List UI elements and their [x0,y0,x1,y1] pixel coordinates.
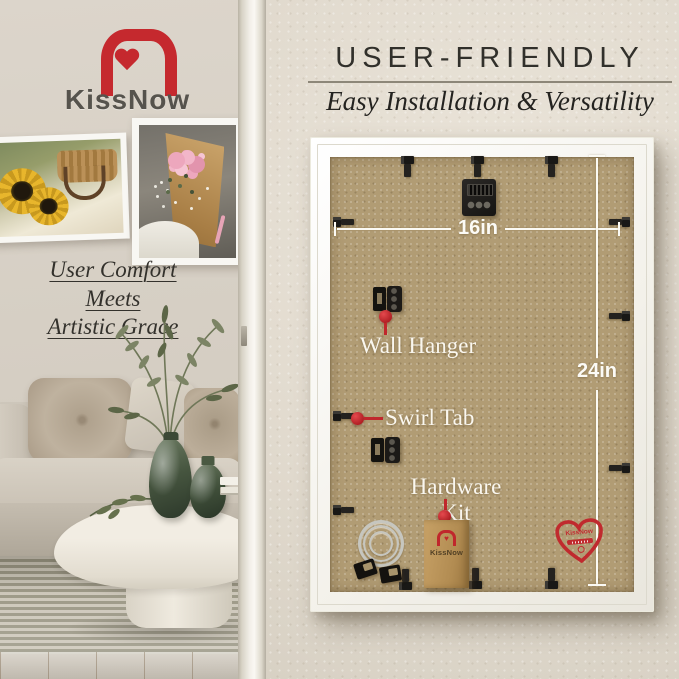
pink-bouquet-photo-frame [132,118,240,265]
babys-breath-icon [160,181,163,184]
book-stack [220,477,240,485]
swirl-tab-icon [545,156,558,178]
wall-hanger-label: Wall Hanger [358,333,478,359]
swirl-tab-icon [333,505,355,515]
callout-line [444,499,447,510]
sunflower-picnic-photo [0,139,124,237]
dimension-tick [334,222,336,236]
width-label: 16in [450,217,506,240]
swirl-tab-icon [333,217,355,227]
title-divider [308,81,672,83]
olive-branches-icon [98,302,240,447]
dimension-tick [618,222,620,236]
swirl-tab-icon [545,567,558,589]
dimension-line [505,228,619,230]
hardware-kit-bag: ♥ KissNow [424,520,469,588]
bag-brand-name: KissNow [424,548,469,557]
sunflower-icon [28,187,69,226]
brand-heart-icon [114,49,140,72]
dimension-line [337,228,451,230]
wall-hanger-icon [373,286,403,312]
swirl-tab-icon [471,156,484,178]
swirl-tab-icon [469,567,482,589]
brand-name: KissNow [20,84,235,116]
wood-floor [0,652,240,679]
basket-strap-icon [63,165,106,200]
callout-dot [351,412,364,425]
callout-line [364,417,383,420]
dimension-tick [589,155,605,157]
heart-badge: KissNow [553,516,607,567]
section-title: USER-FRIENDLY [308,42,672,75]
tagline-line-1: User Comfort [8,256,218,285]
door-hinge-icon [241,326,247,346]
bag-brand-arch-icon: ♥ [437,530,456,546]
swirl-tab-icon [608,463,630,473]
dimension-tick [588,584,606,586]
product-infographic: KissNow User Comfort Meets [0,0,679,679]
dimension-line [596,158,598,358]
living-room-scene: KissNow User Comfort Meets [0,0,240,679]
swirl-tab-icon [401,156,414,178]
wall-hanger-icon [371,437,401,463]
swirl-tab-label: Swirl Tab [385,405,481,431]
sunflower-picnic-photo-frame [0,133,130,244]
hardware-kit-label: Hardware Kit [394,474,518,526]
height-label: 24in [571,360,623,383]
pink-bouquet-photo [139,125,236,258]
swirl-tab-icon [608,311,630,321]
sawtooth-hanger-icon [462,179,496,216]
pink-flowers-icon [168,152,185,169]
callout-dot [379,310,392,323]
section-subtitle: Easy Installation & Versatility [300,86,679,117]
bag-heart-icon: ♥ [444,535,449,543]
green-glass-vase-small [190,464,226,518]
